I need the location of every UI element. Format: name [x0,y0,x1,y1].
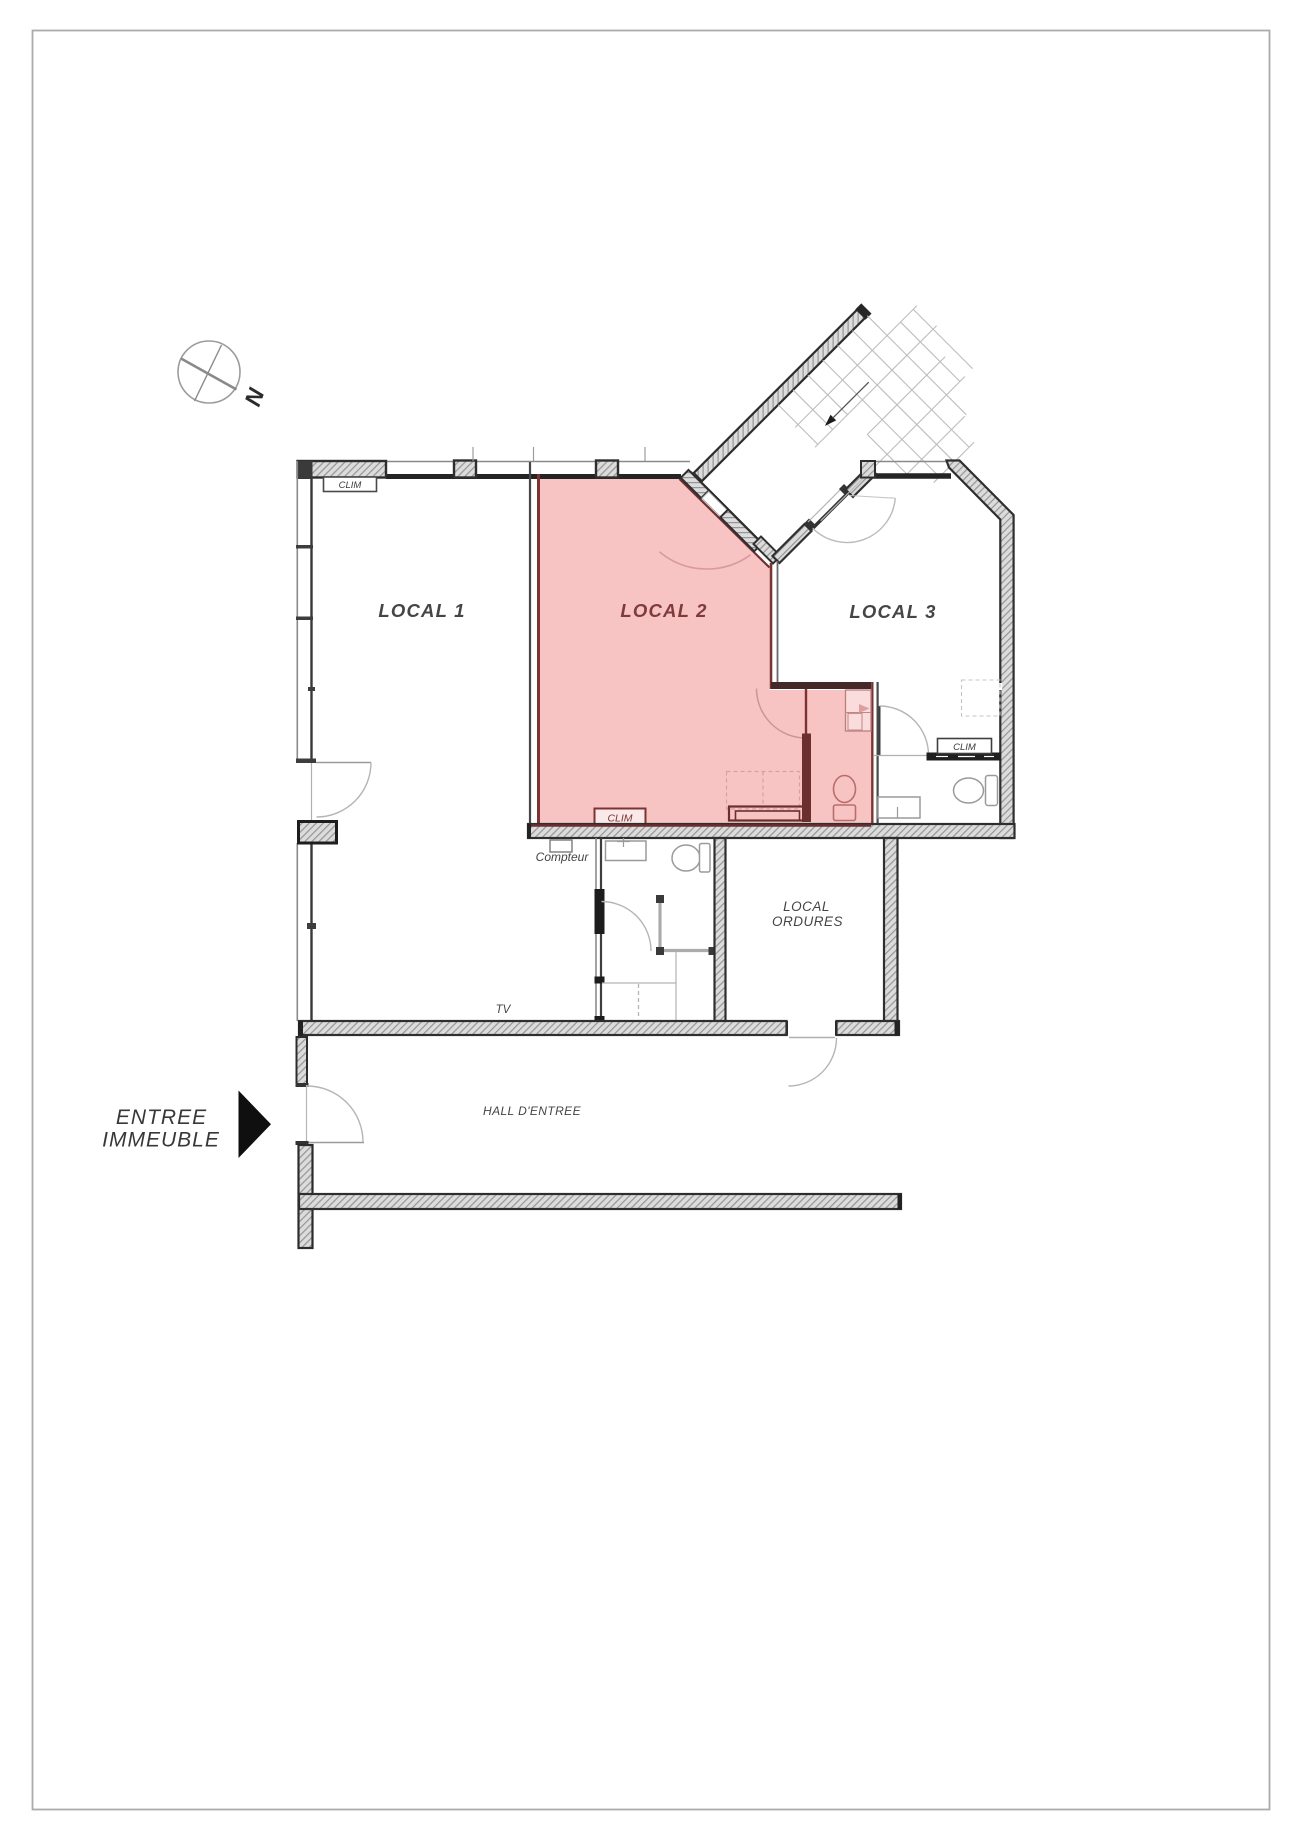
svg-text:TV: TV [496,1004,512,1016]
svg-text:ORDURES: ORDURES [772,914,843,929]
svg-text:LOCAL 2: LOCAL 2 [620,600,707,621]
svg-text:CLIM: CLIM [339,480,362,491]
svg-text:LOCAL: LOCAL [783,899,830,914]
svg-text:LOCAL 1: LOCAL 1 [378,600,465,621]
svg-text:CLIM: CLIM [607,813,632,825]
svg-text:HALL D'ENTREE: HALL D'ENTREE [483,1104,582,1118]
svg-text:LOCAL 3: LOCAL 3 [849,601,936,622]
svg-text:ENTREE: ENTREE [116,1106,207,1129]
svg-text:Compteur: Compteur [536,850,590,864]
svg-text:IMMEUBLE: IMMEUBLE [102,1129,220,1152]
svg-text:CLIM: CLIM [953,742,976,753]
